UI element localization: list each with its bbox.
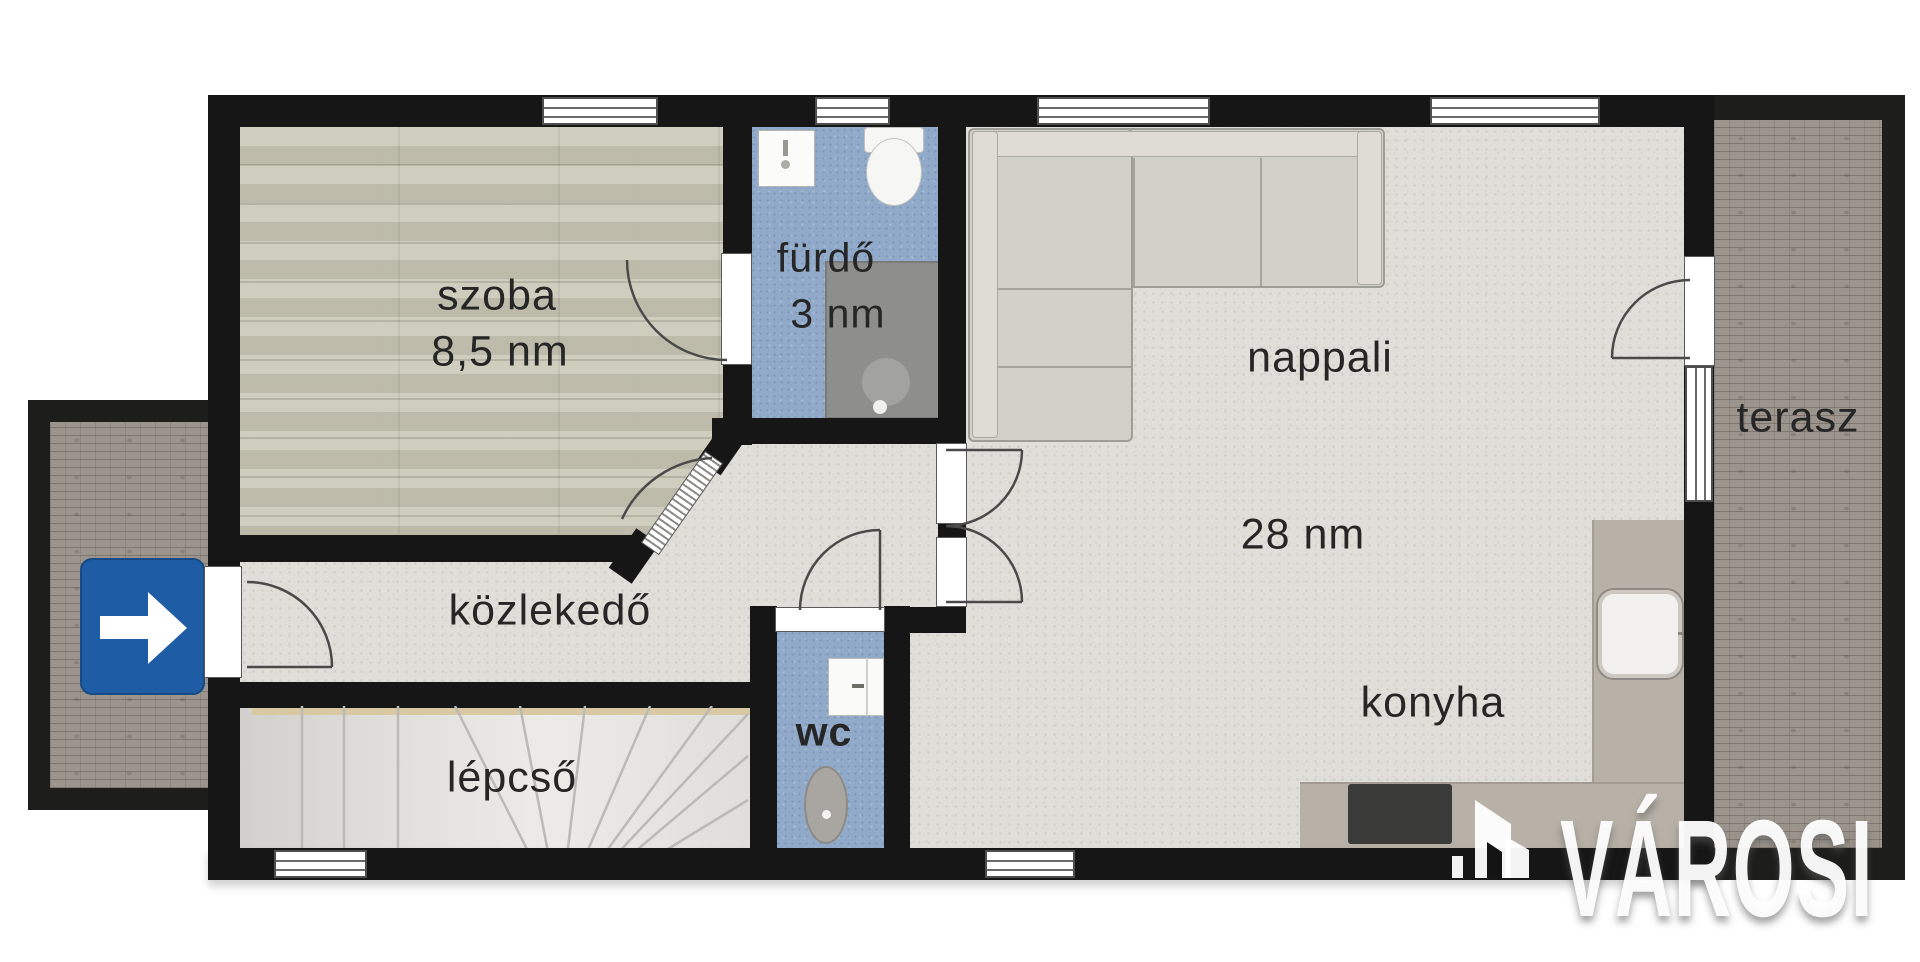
sofa-seam (998, 366, 1131, 368)
sofa-seam (1260, 158, 1262, 286)
wall-furdo-bottom (712, 418, 964, 444)
room-label-terasz: terasz (1736, 394, 1859, 443)
nappali-doorframe-lower (936, 537, 967, 607)
room-area-szoba: 8,5 nm (431, 328, 568, 377)
wall-lepcso-top (240, 682, 775, 708)
room-area-nappali: 28 nm (1241, 511, 1366, 560)
room-label-konyha: konyha (1361, 679, 1506, 728)
room-terasz-floor (1714, 120, 1882, 848)
entrance-doorframe (204, 566, 242, 678)
window-nappali-1 (1037, 97, 1210, 125)
entrance-sign (80, 558, 205, 695)
shower-head (862, 358, 910, 406)
room-label-szoba: szoba (437, 272, 557, 321)
szoba-furdo-doorframe (721, 253, 752, 365)
sofa-armrest-right (1357, 131, 1382, 285)
room-label-wc: wc (796, 709, 853, 756)
sofa-seam (1133, 158, 1135, 286)
wall-furdo-right (938, 127, 966, 447)
wall-bottom (208, 848, 1714, 880)
wall-szoba-right-upper (723, 127, 752, 257)
sofa-backrest-left (972, 131, 998, 438)
sofa-backrest-top (972, 131, 1381, 157)
toilet-bowl (866, 138, 922, 206)
bathroom-sink (758, 130, 815, 187)
sofa-seam (998, 288, 1131, 290)
bathroom-sink-faucet-icon (783, 140, 788, 156)
watermark-logo-text: VÁROSI (1560, 800, 1874, 938)
kitchen-sink (1598, 590, 1682, 678)
wall-wc-left (750, 606, 777, 848)
wc-toilet (804, 766, 848, 844)
window-szoba (542, 97, 658, 125)
room-label-kozlekedo: közlekedő (449, 587, 652, 636)
wc-doorframe (775, 607, 885, 632)
wall-szoba-bottom (240, 535, 636, 562)
room-label-nappali: nappali (1247, 334, 1393, 383)
wc-basin-tap (852, 684, 864, 688)
wall-wc-right (884, 606, 910, 848)
window-konyha-terasz (1685, 366, 1713, 502)
shower-drain (873, 400, 887, 414)
floor-plan: szoba 8,5 nm fürdő 3 nm nappali 28 nm kö… (0, 0, 1920, 962)
room-area-furdo: 3 nm (790, 291, 885, 338)
window-nappali-2 (1430, 97, 1600, 125)
wc-basin-divider (866, 658, 868, 716)
room-label-lepcso: lépcső (447, 754, 577, 803)
window-lepcso (274, 850, 367, 878)
cooktop (1348, 784, 1452, 844)
wall-left (208, 95, 240, 880)
nappali-doorframe-upper (936, 443, 967, 524)
room-label-furdo: fürdő (777, 235, 875, 282)
wc-toilet-seat-dot (822, 810, 831, 819)
terasz-doorframe (1684, 256, 1715, 366)
bathroom-sink-drain (781, 160, 790, 169)
window-furdo (815, 97, 890, 125)
window-nappali-bottom (985, 850, 1075, 878)
